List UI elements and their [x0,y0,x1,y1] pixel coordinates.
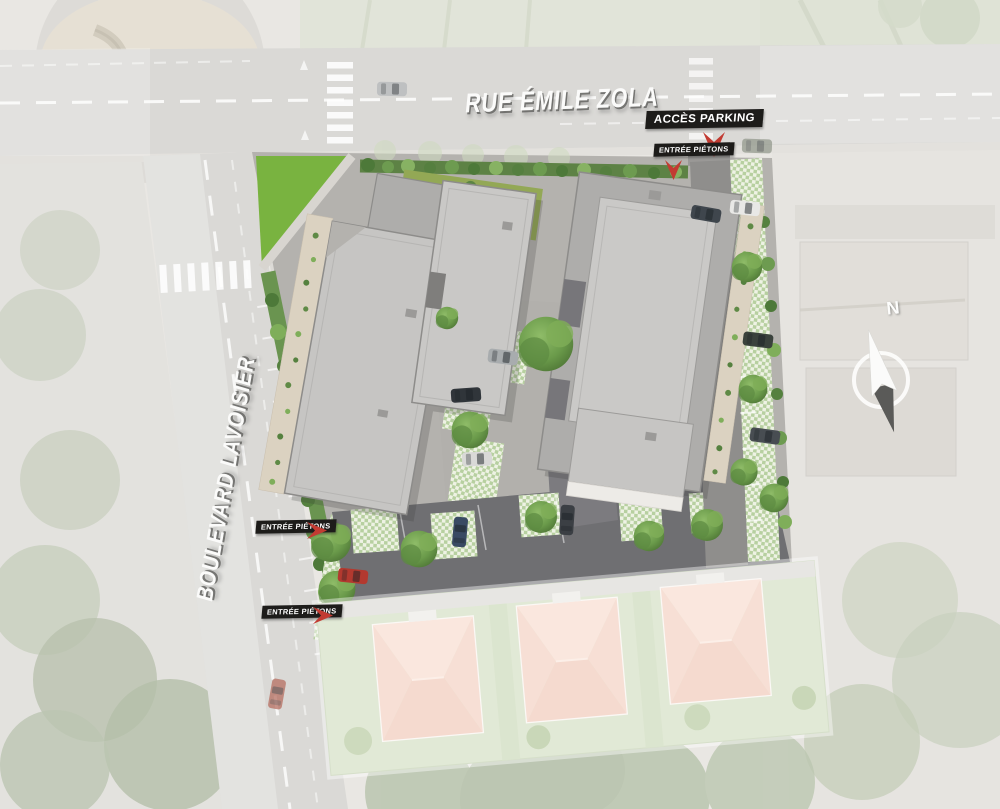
acces-parking-badge: ACCÈS PARKING [645,109,764,129]
scene-graphics [0,0,1000,809]
tree [452,412,489,449]
tree [634,521,664,551]
car-on-road [742,138,772,153]
roof-unit [502,221,513,230]
tree [525,501,557,533]
tree [732,252,762,282]
tree [401,531,438,568]
roof-unit [645,432,657,441]
tree [730,458,757,485]
parked-car [452,516,469,547]
tree [691,509,723,541]
wash-overlay [0,48,150,156]
parked-car [559,505,575,536]
tree [436,307,458,329]
wash-overlay [760,44,1000,144]
parked-car [451,387,482,403]
red-arrow-right-icon [306,521,328,540]
site-plan-aerial-view: RUE ÉMILE ZOLA BOULEVARD LAVOISIER ACCÈS… [0,0,1000,809]
red-arrow-down-icon [664,159,683,181]
tree [739,375,768,404]
entree-pietons-badge-north: ENTRÉE PIÉTONS [653,142,734,156]
roof-unit [648,190,661,201]
tree [760,484,789,513]
red-arrow-right-icon [312,606,334,625]
parked-car [462,451,492,466]
car-on-road [377,82,407,97]
tree [519,317,573,371]
compass-north-label: N [875,296,911,320]
